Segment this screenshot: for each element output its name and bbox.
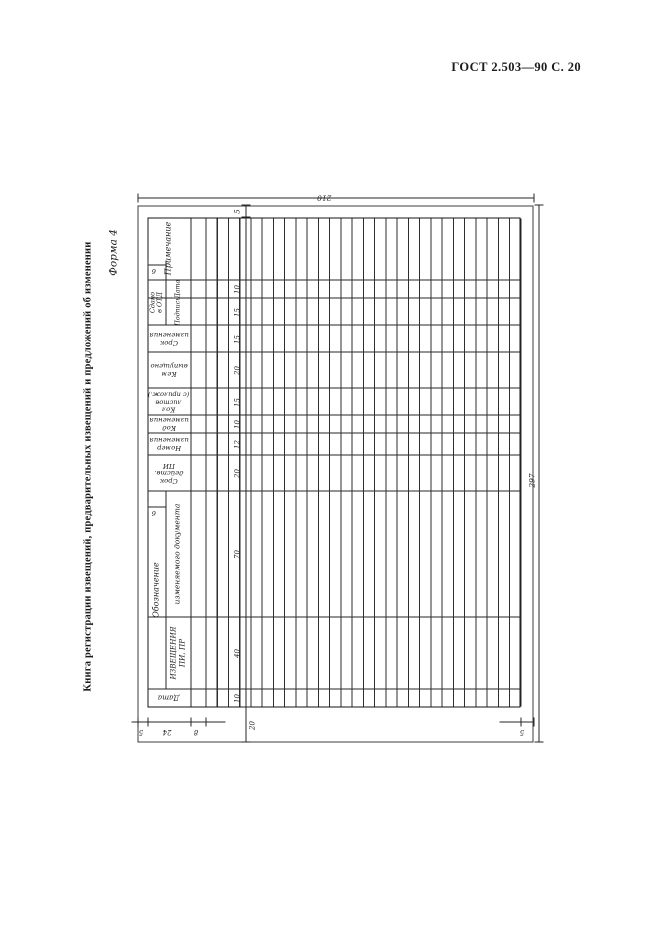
dim-small-cell: 6 xyxy=(147,267,159,274)
dimension-tick xyxy=(520,717,521,726)
dimension-tick xyxy=(241,387,250,388)
dimension-tick xyxy=(165,502,166,511)
dimension-tick xyxy=(147,717,148,726)
dimension-tick xyxy=(147,260,148,269)
dimension-tick xyxy=(533,717,534,726)
dimension-tick xyxy=(533,193,534,202)
column-header-issued-by: Кем выпущено xyxy=(148,352,189,387)
column-header-change-code-label: Код изменения xyxy=(148,416,190,431)
small-cell-dimension xyxy=(147,264,165,265)
column-header-change-code: Код изменения xyxy=(148,415,189,432)
dim-col-date: 10 xyxy=(234,688,241,708)
column-header-pi-validity: Срок действ. ПИ xyxy=(148,455,189,490)
column-header-sheet-count: Кол листов (с прилож.) xyxy=(148,388,189,414)
dim-col-code: 10 xyxy=(234,414,241,434)
dimension-tick xyxy=(534,741,543,742)
dimension-tick xyxy=(137,717,138,726)
dimension-tick xyxy=(241,432,250,433)
column-header-date-label: Дата xyxy=(148,693,188,701)
header-height-dimension-chain xyxy=(131,721,225,722)
dim-col-changed-doc: 70 xyxy=(234,544,241,564)
dimension-tick xyxy=(241,414,250,415)
column-header-sheet-count-label: Кол листов (с прилож.) xyxy=(148,390,190,412)
dim-subrow-height: 8 xyxy=(189,728,203,735)
column-header-changed-doc: изменяемого документа xyxy=(166,491,189,616)
dim-col-term: 15 xyxy=(234,329,241,349)
scanned-page: ГОСТ 2.503—90 С. 20 Книга регистрации из… xyxy=(0,0,661,936)
dimension-tick xyxy=(190,717,191,726)
dimension-tick xyxy=(534,204,543,205)
dim-col-date2: 10 xyxy=(234,279,241,299)
entry-row-lines xyxy=(205,218,521,706)
dim-col-issued: 20 xyxy=(234,360,241,380)
dim-sheet-width: 210 xyxy=(314,193,334,201)
dimension-tick xyxy=(147,502,148,511)
column-header-change-number: Номер изменения xyxy=(148,433,189,454)
dimension-tick xyxy=(241,490,250,491)
dimension-tick xyxy=(241,216,250,217)
column-header-issued-by-label: Кем выпущено xyxy=(148,362,190,377)
header-bottom-line xyxy=(190,218,191,706)
column-header-signature: Подпись xyxy=(166,298,189,324)
column-header-designation: Обозначение xyxy=(148,491,164,688)
column-header-change-number-label: Номер изменения xyxy=(148,436,190,451)
column-header-change-term-label: Срок изменения xyxy=(148,330,190,345)
dimension-tick xyxy=(241,279,250,280)
sheet-width-dimension xyxy=(137,197,533,198)
column-header-date: Дата xyxy=(148,689,189,706)
dim-header-height: 24 xyxy=(160,728,174,735)
dimension-tick xyxy=(241,706,250,707)
dim-right-margin: 5 xyxy=(234,201,241,221)
column-header-change-term: Срок изменения xyxy=(148,325,189,351)
dimension-tick xyxy=(241,688,250,689)
dimension-tick xyxy=(165,260,166,269)
column-header-submitted: Сдано в ОТД xyxy=(148,280,164,324)
dimension-tick xyxy=(241,616,250,617)
small-cell-dimension xyxy=(147,506,165,507)
column-width-dimension-chain xyxy=(245,205,246,742)
column-header-notice: ИЗВЕЩЕНИЯ ПИ, ПР xyxy=(166,617,189,688)
dim-top-margin: 5 xyxy=(134,728,148,735)
dim-col-sheets: 15 xyxy=(234,392,241,412)
dimension-tick xyxy=(137,193,138,202)
dim-sheet-height: 297 xyxy=(528,468,536,492)
dimension-tick xyxy=(205,717,206,726)
dimension-tick xyxy=(241,297,250,298)
page-header: ГОСТ 2.503—90 С. 20 xyxy=(451,60,581,75)
dimension-tick xyxy=(241,741,250,742)
dimension-tick xyxy=(241,204,250,205)
dimension-tick xyxy=(241,351,250,352)
form-number-label: Форма 4 xyxy=(108,227,121,279)
dim-left-margin: 20 xyxy=(249,715,256,735)
dim-col-number: 12 xyxy=(234,434,241,454)
column-header-date2: Дата xyxy=(166,280,189,297)
dim-small-cell: 6 xyxy=(147,509,159,516)
dim-col-sig: 15 xyxy=(234,302,241,322)
book-title-caption: Книга регистрации извещений, предварител… xyxy=(83,234,98,700)
bottom-margin-dimension xyxy=(499,721,533,722)
dim-col-pi: 20 xyxy=(234,463,241,483)
dimension-tick xyxy=(241,324,250,325)
dim-bottom-margin: 5 xyxy=(515,728,529,735)
rotated-form-sheet: Дата Обозначение ИЗВЕЩЕНИЯ ПИ, ПР изменя… xyxy=(137,205,533,742)
sheet-height-dimension xyxy=(538,205,539,742)
column-header-pi-validity-label: Срок действ. ПИ xyxy=(147,461,189,484)
dim-col-notice: 40 xyxy=(234,643,241,663)
dimension-tick xyxy=(241,454,250,455)
